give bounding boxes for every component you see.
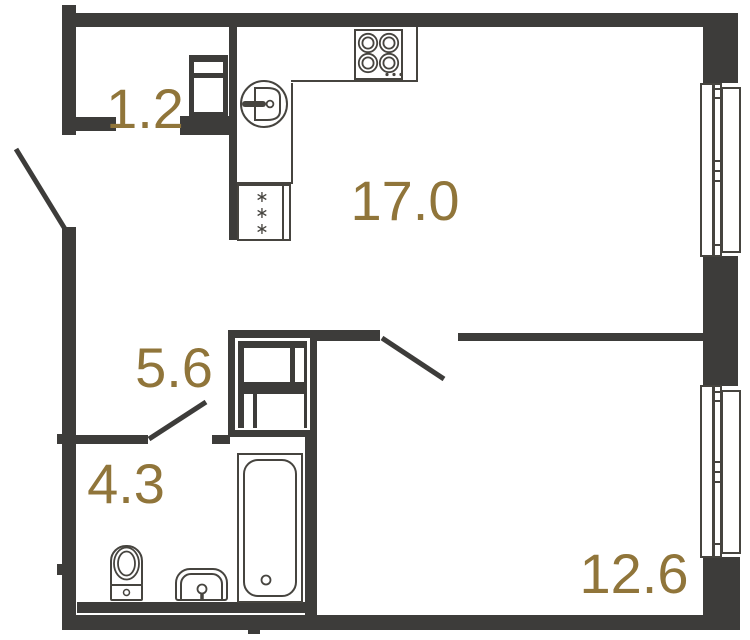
wall-kitchen-partition bbox=[229, 27, 237, 240]
window-bedroom-casement bbox=[700, 385, 714, 558]
wall-bedroom-top bbox=[458, 333, 703, 341]
room-label-bedroom: 12.6 bbox=[559, 545, 709, 601]
window-kitchen-casement bbox=[700, 83, 714, 257]
wardrobe-panel bbox=[244, 348, 290, 382]
wall-left-lower bbox=[62, 227, 76, 630]
wall-bathroom-bedroom bbox=[305, 437, 317, 616]
room-label-hallway: 5.6 bbox=[114, 339, 234, 395]
wall-right-upper bbox=[703, 27, 738, 83]
counter-edge-vertical-left bbox=[291, 83, 293, 183]
floor-plan: ∗ ∗ ∗ bbox=[0, 0, 750, 640]
wall-tie-mark bbox=[248, 630, 260, 634]
window-tick bbox=[713, 471, 722, 473]
wall-bathroom-plumbing-chase bbox=[77, 602, 305, 613]
counter-edge-horizontal bbox=[291, 80, 418, 82]
window-tick bbox=[713, 400, 722, 402]
room-label-kitchen-living: 17.0 bbox=[330, 172, 480, 228]
refrigerator-door-line bbox=[282, 186, 284, 239]
wall-left-upper bbox=[62, 5, 76, 135]
window-tick bbox=[713, 481, 722, 483]
room-label-entry-closet: 1.2 bbox=[85, 80, 205, 136]
window-tick bbox=[713, 244, 722, 246]
washbasin-inner bbox=[180, 573, 223, 601]
window-kitchen-sill bbox=[721, 87, 741, 253]
window-tick bbox=[713, 170, 722, 172]
wall-bottom bbox=[62, 615, 740, 630]
toilet-tank bbox=[110, 584, 143, 601]
toilet-icon bbox=[110, 545, 143, 586]
window-tick bbox=[713, 88, 722, 90]
snowflake-icon: ∗ bbox=[255, 222, 268, 238]
wall-top bbox=[62, 13, 738, 27]
bedroom-door-swing-icon bbox=[382, 338, 444, 379]
bathroom-door-swing-icon bbox=[149, 402, 206, 439]
wardrobe-panel bbox=[244, 394, 253, 429]
wall-right-middle bbox=[703, 256, 738, 386]
vent-shaft-upper-panel bbox=[194, 62, 223, 73]
window-tick bbox=[713, 461, 722, 463]
kitchen-sink-icon bbox=[241, 81, 287, 127]
wall-tie-mark bbox=[57, 564, 62, 575]
snowflake-icon: ∗ bbox=[255, 190, 268, 206]
window-tick bbox=[713, 97, 722, 99]
bathtub-basin bbox=[243, 459, 297, 597]
window-bedroom-sill bbox=[721, 390, 741, 554]
refrigerator-snowflakes: ∗ ∗ ∗ bbox=[253, 190, 271, 238]
wall-tie-mark bbox=[57, 434, 62, 444]
window-tick bbox=[713, 180, 722, 182]
window-tick bbox=[713, 391, 722, 393]
window-tick bbox=[713, 160, 722, 162]
room-label-bathroom: 4.3 bbox=[66, 455, 186, 511]
wardrobe-panel bbox=[257, 394, 304, 429]
stove-icon bbox=[354, 29, 403, 80]
snowflake-icon: ∗ bbox=[255, 206, 268, 222]
counter-edge-vertical-right bbox=[416, 27, 418, 82]
entrance-door-swing-icon bbox=[16, 149, 65, 229]
window-tick bbox=[713, 543, 722, 545]
wall-bathroom-top bbox=[62, 435, 148, 444]
wardrobe-panel bbox=[295, 348, 304, 382]
